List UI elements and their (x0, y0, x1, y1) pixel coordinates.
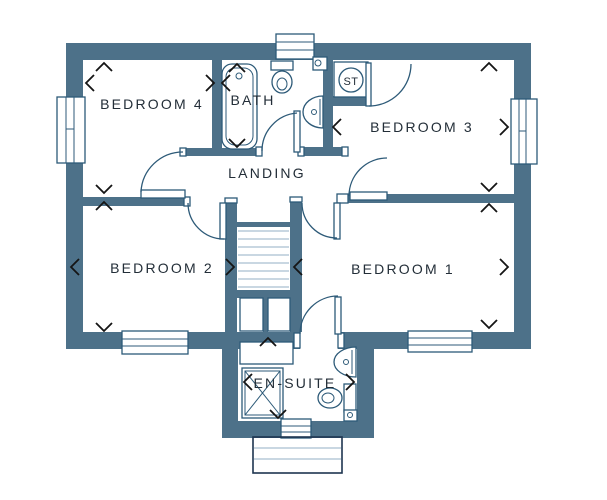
airing-cupboard (240, 342, 293, 364)
room-label-bath: BATH (230, 92, 275, 108)
wall-stair-mid (237, 290, 290, 298)
understair-box-left (240, 298, 263, 331)
basin-ensuite-icon (334, 347, 356, 377)
door-bedroom4 (141, 152, 185, 198)
door-bedroom1 (302, 203, 340, 239)
stair-top-edge (237, 222, 290, 227)
wall-ensuite-bottom-b (311, 421, 374, 438)
room-label-bedroom1: BEDROOM 1 (351, 261, 455, 277)
cistern-box-icon (344, 410, 357, 421)
stairs (237, 222, 290, 331)
door-storage (366, 63, 411, 106)
floor-plan: ST (0, 0, 607, 500)
understair-box-right (268, 298, 290, 331)
toilet-bath-icon (271, 61, 293, 93)
storage-cupboard: ST (334, 62, 368, 97)
wall-stair-west (225, 200, 237, 332)
stair-treads (238, 231, 289, 287)
wall-right (514, 43, 531, 349)
door-bedroom2 (188, 203, 226, 239)
door-bath (262, 111, 300, 152)
dimension-arrows-bedroom4 (86, 63, 214, 193)
room-label-bedroom2: BEDROOM 2 (110, 260, 214, 276)
porch-canopy (253, 437, 342, 473)
basin-bath-icon (303, 96, 323, 128)
window-bedroom4-left (57, 97, 85, 163)
door-ensuite (300, 296, 341, 334)
boiler-icon (313, 57, 327, 70)
wall-ensuite-bottom-a (222, 421, 281, 438)
room-label-bedroom3: BEDROOM 3 (370, 119, 474, 135)
wall-bath-west (212, 60, 222, 153)
wall-left (66, 43, 83, 349)
storage-label: ST (343, 76, 358, 88)
window-bath-top (276, 34, 314, 59)
room-label-landing: LANDING (228, 165, 306, 181)
window-bedroom1-bottom (408, 331, 472, 352)
wall-bath-east (323, 60, 333, 153)
door-bedroom3 (349, 158, 387, 200)
window-ensuite-bottom (281, 419, 311, 438)
room-label-bedroom4: BEDROOM 4 (100, 96, 204, 112)
window-bedroom2-bottom (122, 331, 188, 354)
wall-understair-mullion (263, 298, 268, 332)
room-label-ensuite: EN-SUITE (254, 375, 337, 391)
wall-landing-north-east (298, 147, 348, 156)
window-bedroom3-right (511, 99, 537, 164)
